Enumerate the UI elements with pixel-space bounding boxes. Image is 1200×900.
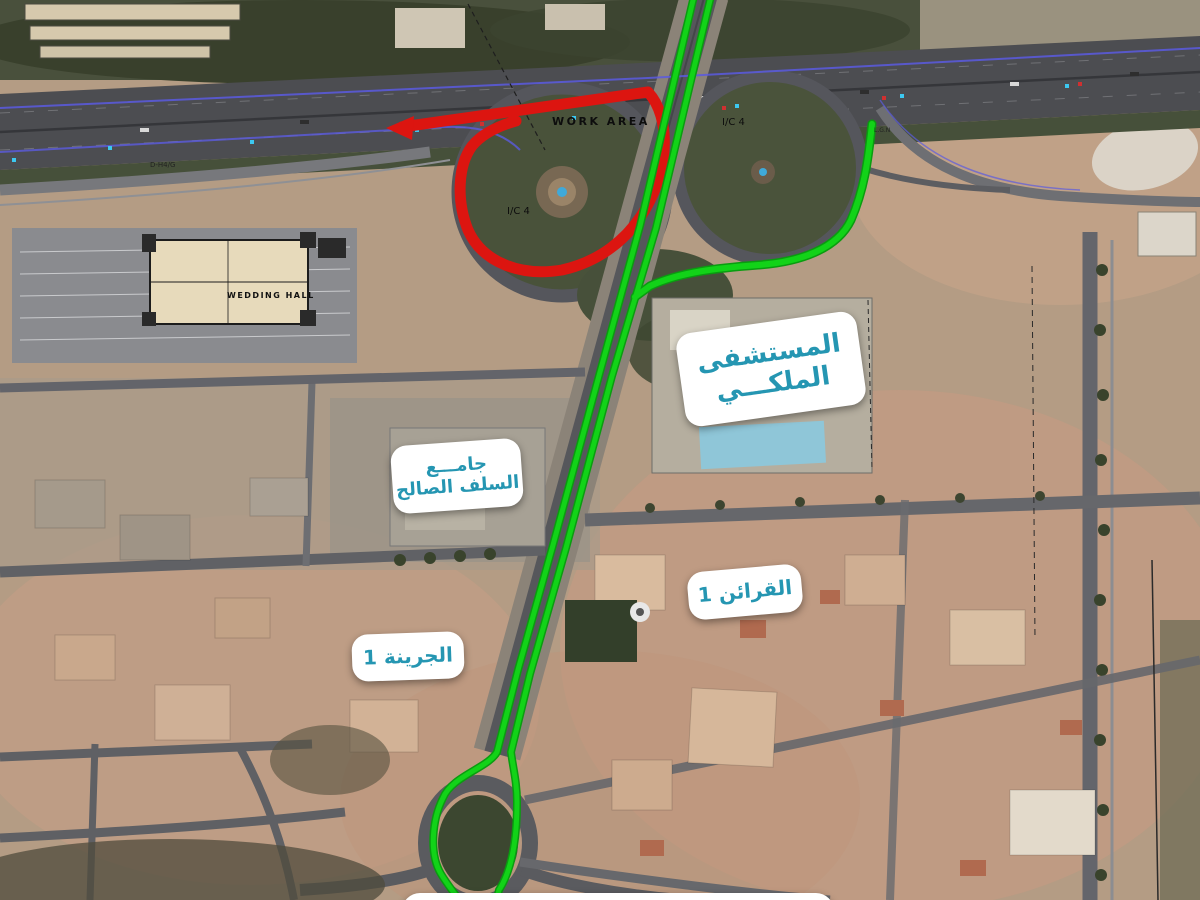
wedding-hall-label: WEDDING HALL [227,291,315,300]
work-area-label: WORK AREA [552,115,650,128]
district-label-qarain-text: القرائن 1 [687,575,803,608]
district-label-jurainah: الجرينة 1 [351,631,465,682]
road-ref-label-right: L.G.N [874,127,890,134]
district-label-qarain: القرائن 1 [686,563,804,621]
district-label-jurainah-text: الجرينة 1 [352,643,465,670]
interchange-label-left: I/C 4 [507,206,530,217]
bottom-label-cutoff [402,893,834,900]
mosque-place-label: جامـــع السلف الصالح [390,438,524,515]
interchange-label-right: I/C 4 [722,117,745,128]
satellite-map: WORK AREA I/C 4 I/C 4 WEDDING HALL D-H4/… [0,0,1200,900]
satellite-terrain [0,0,1200,900]
map-canvas [0,0,1200,900]
road-ref-label-left: D-H4/G [150,161,175,169]
